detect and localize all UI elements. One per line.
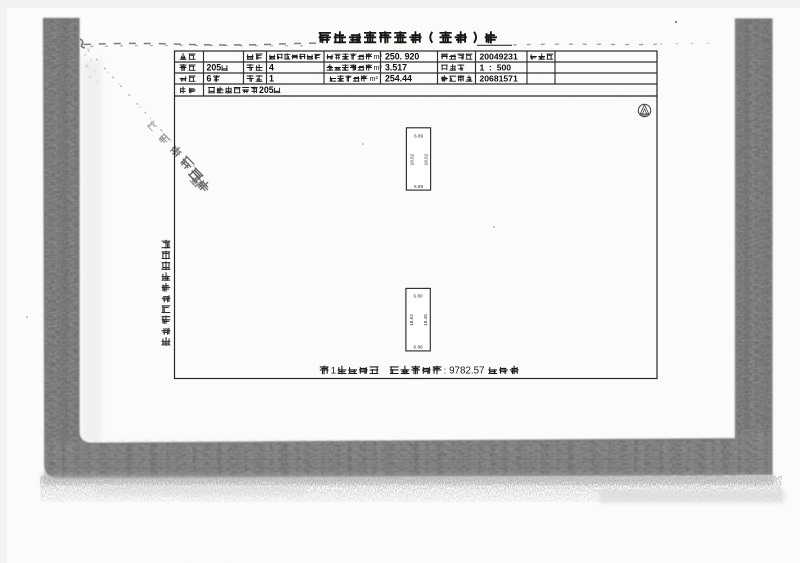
svg-text:18.45: 18.45 bbox=[423, 314, 428, 326]
svg-text:1: 1 bbox=[269, 73, 274, 83]
svg-text:6.80: 6.80 bbox=[414, 294, 424, 299]
svg-text:6.89: 6.89 bbox=[414, 345, 424, 350]
svg-text:18.62: 18.62 bbox=[424, 153, 429, 165]
svg-text:m²: m² bbox=[370, 74, 379, 83]
svg-text:20049231: 20049231 bbox=[480, 51, 518, 61]
svg-text:m²: m² bbox=[374, 52, 383, 61]
svg-text:205: 205 bbox=[259, 85, 274, 95]
svg-text:m²: m² bbox=[374, 63, 383, 72]
svg-text:254.44: 254.44 bbox=[385, 73, 412, 83]
svg-text:250. 920: 250. 920 bbox=[385, 51, 419, 61]
svg-text:3.517: 3.517 bbox=[385, 62, 407, 72]
svg-text:18.62: 18.62 bbox=[409, 153, 414, 165]
svg-text:20681571: 20681571 bbox=[480, 73, 518, 83]
svg-text:9782.57: 9782.57 bbox=[449, 366, 484, 377]
svg-text::: : bbox=[444, 366, 447, 377]
svg-text:18.62: 18.62 bbox=[409, 314, 414, 326]
svg-text:1: 1 bbox=[331, 366, 336, 377]
svg-text:6.89: 6.89 bbox=[414, 184, 424, 189]
svg-text:1 : 500: 1 : 500 bbox=[480, 62, 512, 72]
svg-text:4: 4 bbox=[269, 62, 274, 72]
svg-text:6: 6 bbox=[207, 73, 212, 83]
svg-text:6.89: 6.89 bbox=[414, 134, 424, 139]
svg-text:205: 205 bbox=[207, 62, 222, 72]
